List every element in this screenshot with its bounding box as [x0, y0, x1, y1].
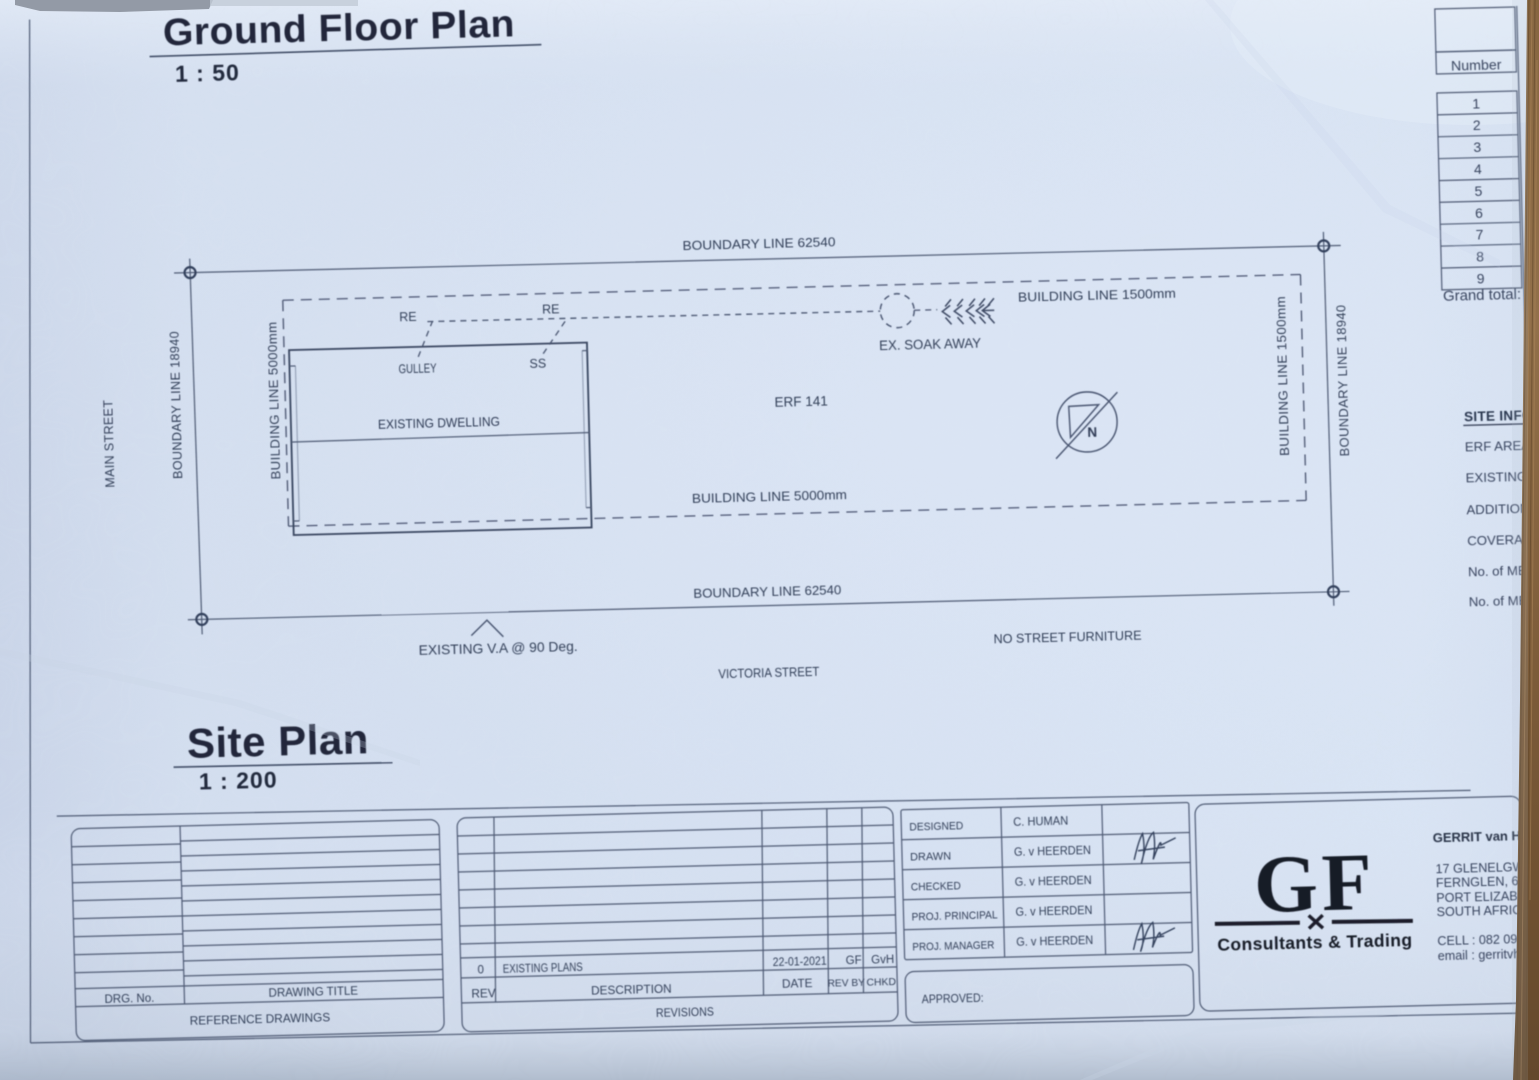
- svg-text:SS: SS: [529, 357, 546, 371]
- svg-text:0: 0: [477, 964, 484, 976]
- svg-text:GF: GF: [1253, 836, 1377, 930]
- svg-text:2: 2: [1473, 117, 1481, 133]
- svg-text:6: 6: [1475, 205, 1483, 221]
- svg-text:RE: RE: [399, 310, 417, 324]
- svg-text:DRAWN: DRAWN: [910, 851, 951, 864]
- svg-text:ERF 141: ERF 141: [774, 393, 828, 409]
- svg-text:C. HUMAN: C. HUMAN: [1013, 815, 1068, 829]
- svg-text:Site Plan: Site Plan: [186, 715, 369, 767]
- svg-text:GF: GF: [846, 955, 862, 967]
- svg-text:EXISTING DWELLING: EXISTING DWELLING: [378, 414, 500, 432]
- svg-text:DRG. No.: DRG. No.: [104, 993, 154, 1006]
- svg-text:G. v HEERDEN: G. v HEERDEN: [1015, 874, 1092, 889]
- svg-text:GvH: GvH: [871, 954, 894, 967]
- svg-text:G. v HEERDEN: G. v HEERDEN: [1014, 844, 1091, 859]
- svg-text:5: 5: [1474, 183, 1482, 199]
- svg-text:Grand total:: Grand total:: [1443, 287, 1521, 305]
- svg-text:REVISIONS: REVISIONS: [656, 1007, 715, 1020]
- svg-text:DRAWING TITLE: DRAWING TITLE: [268, 986, 358, 1000]
- svg-text:REV: REV: [471, 986, 496, 1001]
- svg-text:G. v HEERDEN: G. v HEERDEN: [1015, 904, 1092, 919]
- svg-text:1 : 200: 1 : 200: [199, 767, 278, 795]
- svg-text:RE: RE: [542, 302, 560, 316]
- svg-text:MAIN STREET: MAIN STREET: [100, 400, 117, 488]
- svg-text:EXISTING PLANS: EXISTING PLANS: [503, 962, 584, 976]
- svg-text:DESCRIPTION: DESCRIPTION: [591, 982, 672, 998]
- svg-text:APPROVED:: APPROVED:: [921, 991, 983, 1007]
- svg-text:3: 3: [1473, 139, 1481, 155]
- svg-text:DESIGNED: DESIGNED: [909, 820, 963, 833]
- svg-text:1 : 50: 1 : 50: [175, 59, 240, 87]
- svg-text:VICTORIA STREET: VICTORIA STREET: [718, 664, 819, 682]
- svg-text:CHECKED: CHECKED: [911, 880, 961, 893]
- svg-text:Number: Number: [1451, 57, 1502, 74]
- svg-text:4: 4: [1474, 161, 1482, 177]
- svg-text:DATE: DATE: [782, 976, 813, 991]
- svg-text:G. v HEERDEN: G. v HEERDEN: [1016, 934, 1093, 949]
- svg-text:PROJ. PRINCIPAL: PROJ. PRINCIPAL: [911, 909, 997, 923]
- svg-text:22-01-2021: 22-01-2021: [773, 956, 827, 969]
- svg-text:GULLEY: GULLEY: [398, 361, 437, 376]
- svg-text:N: N: [1087, 425, 1097, 440]
- svg-text:1: 1: [1472, 95, 1480, 111]
- svg-text:7: 7: [1475, 226, 1483, 242]
- svg-text:CHKD: CHKD: [866, 977, 896, 989]
- svg-text:EX. SOAK AWAY: EX. SOAK AWAY: [879, 336, 981, 354]
- svg-text:9: 9: [1477, 270, 1485, 286]
- svg-text:PROJ. MANAGER: PROJ. MANAGER: [912, 939, 994, 953]
- svg-text:REV BY: REV BY: [827, 978, 865, 990]
